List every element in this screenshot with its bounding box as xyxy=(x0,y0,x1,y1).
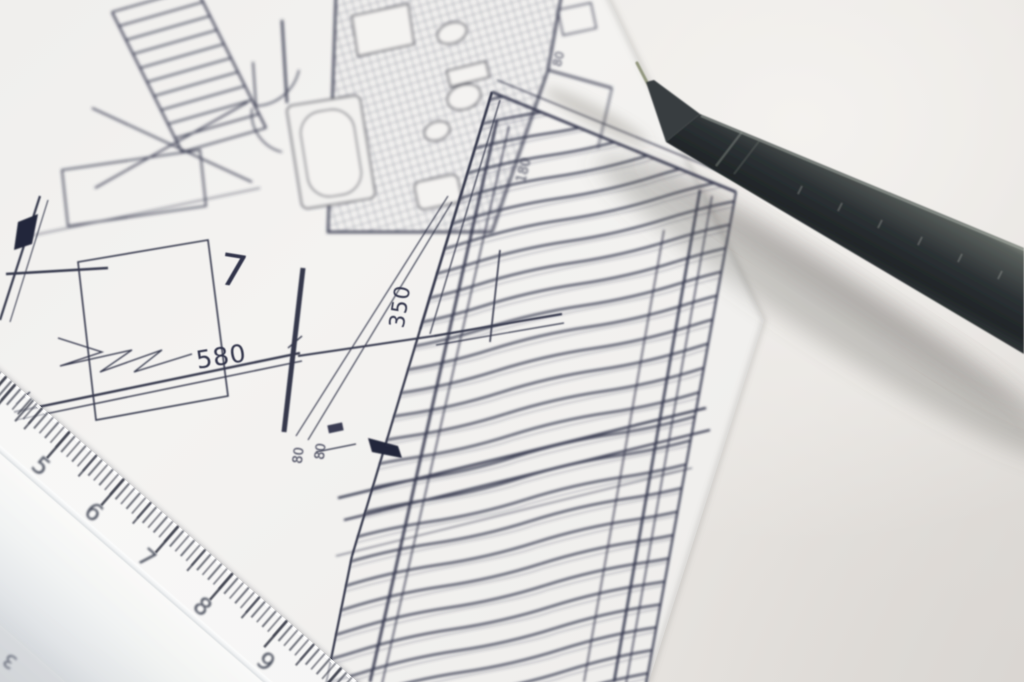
drafting-pen xyxy=(0,0,1024,682)
photo-scene: 7 580 350 80 180 80 80 4 5 6 7 8 9 3 xyxy=(0,0,1024,682)
